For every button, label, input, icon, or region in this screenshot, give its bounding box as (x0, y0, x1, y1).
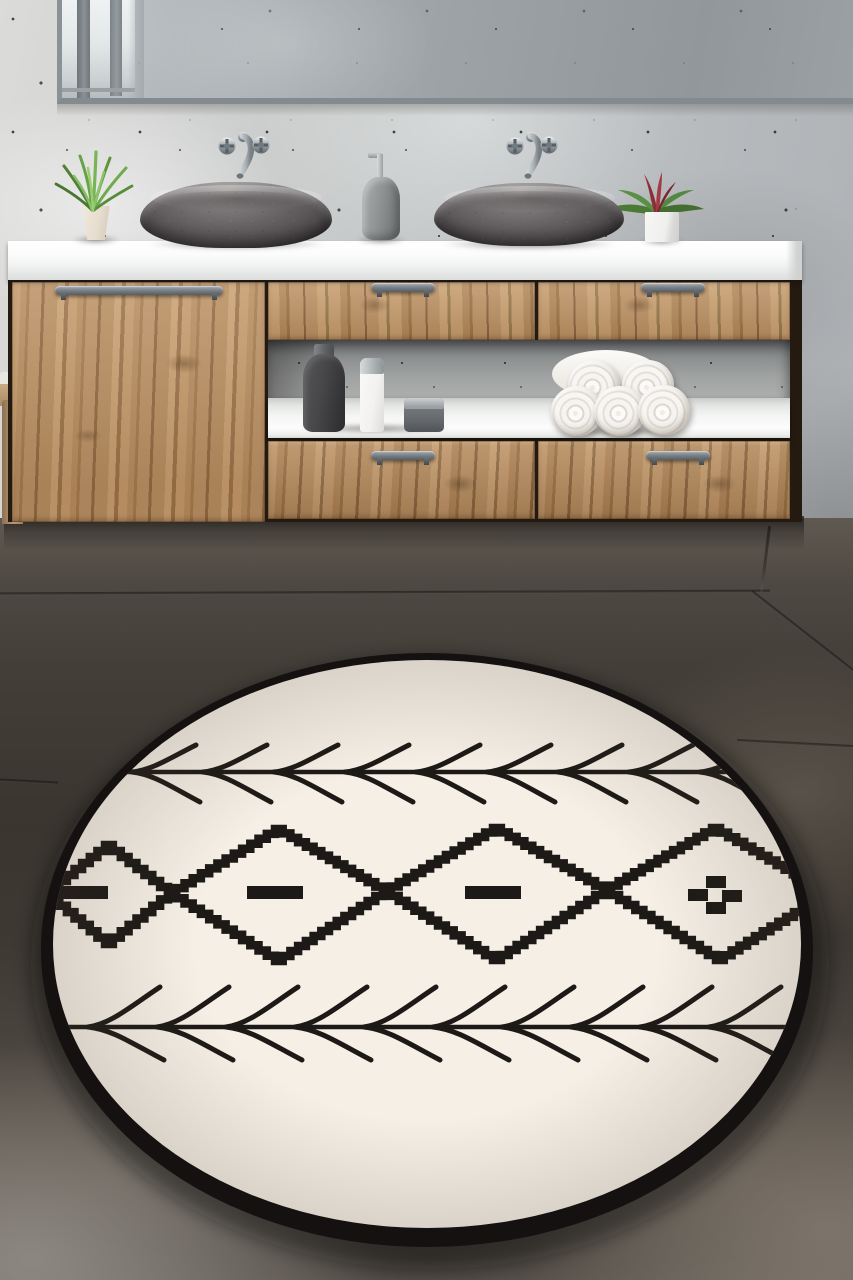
stone-sink-left (140, 182, 332, 248)
grass-plant (46, 146, 138, 212)
soap-dispenser (362, 177, 400, 240)
bathroom-scene (0, 0, 853, 1280)
white-bottle-cap (360, 358, 384, 374)
rolled-towel (638, 385, 690, 435)
drawer-handle (371, 283, 435, 292)
faucet-right (500, 126, 572, 184)
stone-sink-right (434, 183, 624, 246)
plant-pot-white (645, 212, 679, 242)
dark-lotion-bottle (303, 354, 345, 432)
drawer-handle (641, 283, 705, 292)
drawer-handle (371, 451, 435, 460)
door-handle (55, 286, 223, 295)
jar-lid (404, 398, 444, 409)
drawer-handle (646, 451, 710, 460)
faucet-left (212, 126, 284, 184)
